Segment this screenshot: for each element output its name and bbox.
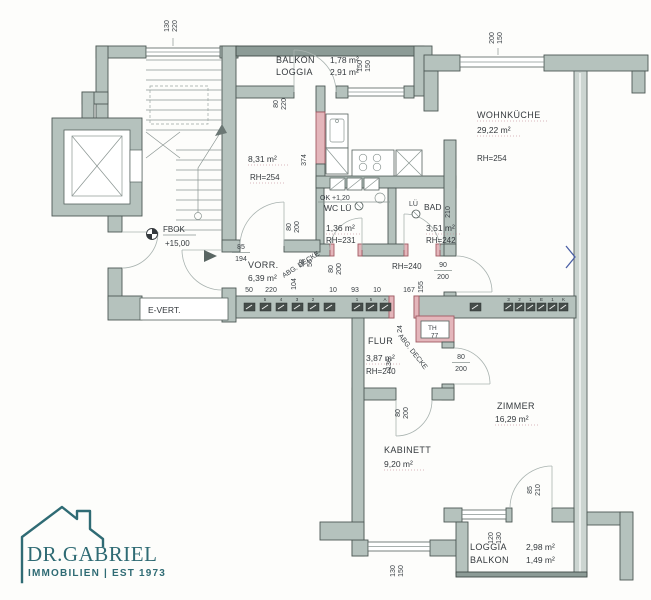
- stair-treads-lower: [176, 150, 222, 230]
- room-label-vorraum: VORR.: [248, 260, 279, 270]
- wall-segment: [424, 55, 460, 71]
- door-size-85-210: 210: [535, 484, 542, 496]
- fbok-label: FBOK: [163, 225, 185, 234]
- dim-210: 210: [445, 206, 452, 218]
- wall-segment: [404, 86, 414, 98]
- area-label: 1,78 m²: [330, 55, 359, 65]
- room-label-balkon-bottom: BALKON: [470, 555, 509, 565]
- window-size-120-130: 120: [488, 532, 495, 544]
- area-label: 1,36 m²: [326, 223, 355, 233]
- room-label-kabinett: KABINETT: [384, 445, 431, 455]
- wall-segment: [544, 55, 648, 71]
- new-wall-jamb: [358, 244, 362, 256]
- area-label-zimmer831: 8,31 m²: [248, 154, 277, 164]
- rh-label: RH=240: [392, 262, 422, 271]
- stove-unit: [352, 150, 394, 176]
- window-size-130-150: 130: [390, 565, 397, 577]
- dim-chain: 220: [265, 287, 277, 294]
- window-size-200-150: 200: [489, 32, 496, 44]
- evert-label: E-VERT.: [148, 305, 180, 315]
- window-size-200-150: 150: [497, 32, 504, 44]
- door-size-130-220: 130: [164, 20, 171, 32]
- level-marker-quadrant: [152, 229, 158, 235]
- room-label-bad: BAD: [424, 202, 441, 212]
- dim-58-56: 58: [299, 259, 306, 267]
- room-label-flur: FLUR: [368, 336, 393, 346]
- door-size-85-194: 85: [237, 244, 245, 251]
- wall-segment: [620, 512, 633, 580]
- dim-155: 155: [418, 281, 425, 293]
- dim-chain: 10: [373, 287, 381, 294]
- loggia-parapet: [456, 572, 587, 577]
- fbok-level: +15,00: [165, 239, 190, 248]
- door-arc: [456, 256, 492, 292]
- area-label: 9,20 m²: [384, 459, 413, 469]
- wall-segment: [424, 71, 438, 111]
- wall-segment: [108, 216, 122, 232]
- area-label: 2,91 m²: [330, 67, 359, 77]
- dim-374: 374: [301, 154, 308, 166]
- dim-chain: 10: [329, 287, 337, 294]
- door-size-80-200: 80: [286, 223, 293, 231]
- wall-segment: [336, 86, 348, 98]
- new-wall-jamb: [404, 244, 408, 256]
- wall-segment: [632, 71, 645, 93]
- room-label-balkon: BALKON: [276, 55, 315, 65]
- dim-24: 24: [397, 325, 404, 333]
- door-size-85-194: 194: [235, 256, 247, 263]
- door-size-80-200: 80: [457, 354, 465, 361]
- stair-treads-upper: [146, 60, 222, 130]
- wall-segment: [284, 240, 320, 252]
- wall-segment: [236, 86, 294, 98]
- room-label-zimmer: ZIMMER: [497, 401, 535, 411]
- new-wall-jamb: [414, 296, 419, 318]
- meter-number: A: [383, 297, 386, 302]
- area-label: 6,39 m²: [248, 273, 277, 283]
- wall-segment: [352, 540, 368, 556]
- wall-segment: [222, 46, 236, 248]
- wall-segment: [432, 388, 454, 400]
- wall-segment: [444, 508, 462, 522]
- logo-name: DR.GABRIEL: [27, 542, 157, 566]
- door-size-85-210: 85: [527, 486, 534, 494]
- door-size-80-200: 200: [336, 263, 343, 275]
- dim-136: 136: [386, 358, 393, 370]
- dashed-overhead-line: [150, 86, 208, 124]
- rh-label: RH=254: [250, 173, 280, 182]
- door-size-90-200: 200: [437, 274, 449, 281]
- window-size-120-130: 130: [496, 532, 503, 544]
- wall-segment: [96, 46, 108, 124]
- th-label: TH: [428, 325, 437, 332]
- area-label: 1,49 m²: [526, 555, 555, 565]
- area-label: 3,51 m²: [426, 223, 455, 233]
- dim-58-56: 56: [307, 259, 314, 267]
- window-size-150-150: 150: [365, 60, 372, 72]
- stair-walkline-start: [195, 213, 202, 220]
- door-size-80-200: 80: [328, 265, 335, 273]
- room-label-wc: WC LÜ: [324, 203, 351, 213]
- logo: DR.GABRIEL IMMOBILIEN | EST 1973: [22, 507, 166, 582]
- meter-number: E: [540, 297, 543, 302]
- door-size-80-200: 200: [294, 221, 301, 233]
- wall-segment: [108, 296, 142, 320]
- wall-segment: [388, 188, 396, 246]
- door-size-90-200: 90: [439, 262, 447, 269]
- wall-segment: [552, 508, 574, 522]
- wall-segment: [316, 86, 325, 112]
- wall-segment: [362, 244, 404, 256]
- dim-chain: 167: [403, 287, 415, 294]
- wall-segment: [108, 268, 122, 300]
- logo-tagline: IMMOBILIEN | EST 1973: [28, 568, 166, 579]
- new-wall-segment: [316, 112, 325, 164]
- floorplan-page: E-VERT. 5 4 3 2 1 5 A: [0, 0, 651, 600]
- area-label: 2,98 m²: [526, 542, 555, 552]
- ok-level-label: OK +1,20: [320, 195, 350, 202]
- washbasin-icon: [375, 193, 385, 203]
- elevator-door: [130, 150, 142, 182]
- level-marker-quadrant: [147, 234, 153, 240]
- window-size-150-150: 150: [357, 60, 364, 72]
- door-arc: [396, 400, 432, 436]
- room-label-loggia: LOGGIA: [276, 67, 313, 77]
- entrance-arrow-icon: [204, 250, 217, 262]
- dim-chain: 93: [351, 287, 359, 294]
- door-size-80-200: 200: [403, 407, 410, 419]
- rh-label: RH=254: [477, 154, 507, 163]
- room-label-wohnkueche: WOHNKÜCHE: [477, 110, 541, 120]
- dim-chain: 50: [245, 287, 253, 294]
- area-label: 16,29 m²: [495, 414, 529, 424]
- floorplan-drawing: E-VERT. 5 4 3 2 1 5 A: [0, 0, 651, 600]
- th-value: 77: [431, 333, 439, 340]
- wall-segment: [444, 244, 456, 256]
- survey-marker: FBOK +15,00: [147, 225, 218, 262]
- wall-segment: [352, 318, 364, 556]
- wall-segment: [506, 508, 512, 522]
- wall-segment: [442, 342, 454, 348]
- wall-segment: [456, 522, 468, 574]
- dim-104: 104: [291, 278, 298, 290]
- rh-label: RH=242: [426, 236, 456, 245]
- meters-group-b: 1 5 A: [352, 297, 391, 311]
- door-arc: [240, 202, 284, 246]
- elevator-shaft: [64, 130, 130, 204]
- window-size-130-150: 150: [398, 565, 405, 577]
- wall-segment: [430, 540, 456, 556]
- wall-segment: [320, 522, 364, 540]
- door-size-130-220: 220: [172, 20, 179, 32]
- lu-label: LÜ: [409, 200, 418, 208]
- rh-label: RH=231: [326, 236, 356, 245]
- door-size-80-200: 200: [455, 366, 467, 373]
- meter-number: K: [562, 297, 565, 302]
- door-size-80-220: 220: [281, 98, 288, 110]
- door-size-80-200: 80: [395, 409, 402, 417]
- area-label: 29,22 m²: [477, 125, 511, 135]
- door-size-80-220: 80: [273, 100, 280, 108]
